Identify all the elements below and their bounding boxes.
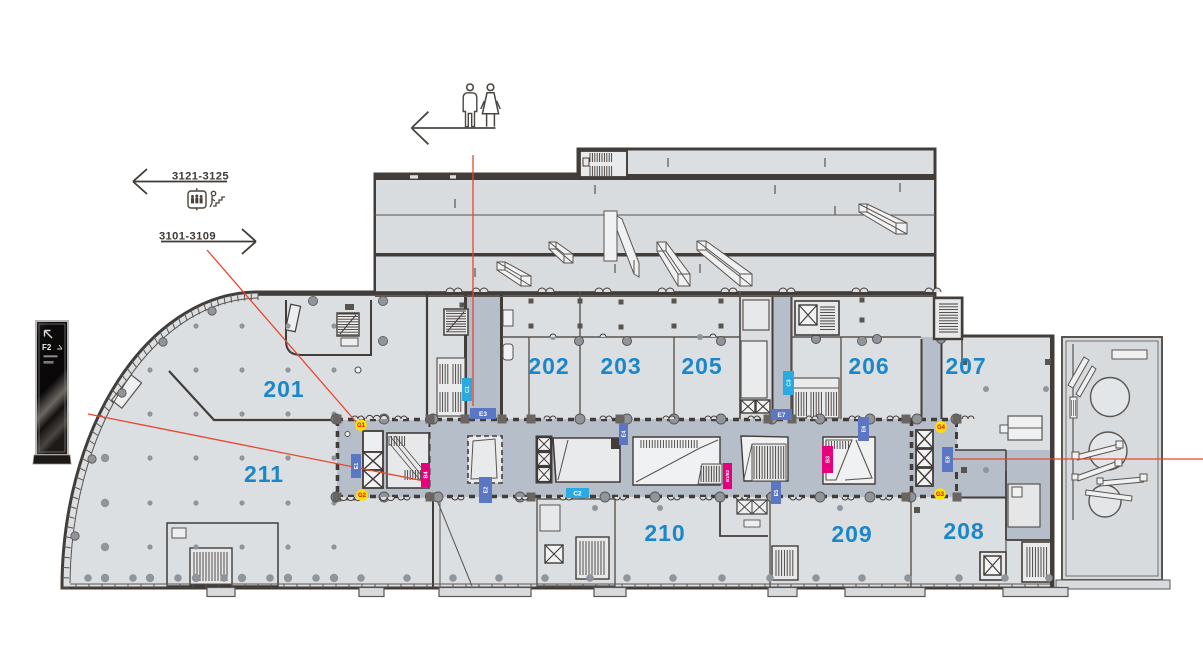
svg-text:210: 210 bbox=[644, 520, 685, 546]
svg-text:E6: E6 bbox=[861, 426, 867, 433]
svg-text:G2: G2 bbox=[358, 493, 367, 499]
svg-text:C3: C3 bbox=[786, 379, 792, 386]
svg-text:209: 209 bbox=[831, 521, 872, 547]
svg-text:B3: B3 bbox=[825, 456, 831, 463]
svg-text:205: 205 bbox=[681, 353, 722, 379]
svg-text:E1: E1 bbox=[354, 463, 360, 470]
svg-text:E7: E7 bbox=[778, 412, 786, 419]
svg-text:G1: G1 bbox=[357, 423, 366, 429]
svg-text:E8: E8 bbox=[945, 456, 951, 463]
svg-text:E5: E5 bbox=[774, 490, 780, 497]
svg-text:211: 211 bbox=[244, 461, 284, 487]
svg-text:F2: F2 bbox=[42, 343, 52, 352]
svg-text:B4: B4 bbox=[423, 471, 429, 479]
svg-text:208: 208 bbox=[943, 518, 984, 544]
svg-text:E3: E3 bbox=[479, 411, 487, 418]
svg-text:C1: C1 bbox=[465, 386, 471, 393]
svg-text:202: 202 bbox=[528, 353, 569, 379]
svg-text:206: 206 bbox=[848, 353, 889, 379]
svg-text:C2: C2 bbox=[573, 490, 582, 497]
svg-text:203: 203 bbox=[600, 353, 641, 379]
svg-text:E4: E4 bbox=[621, 430, 627, 438]
svg-text:B1/B2: B1/B2 bbox=[725, 469, 730, 482]
svg-text:201: 201 bbox=[263, 376, 304, 402]
svg-text:G3: G3 bbox=[936, 492, 945, 498]
svg-text:207: 207 bbox=[945, 353, 986, 379]
svg-text:E2: E2 bbox=[483, 487, 489, 494]
svg-text:G4: G4 bbox=[937, 425, 946, 431]
